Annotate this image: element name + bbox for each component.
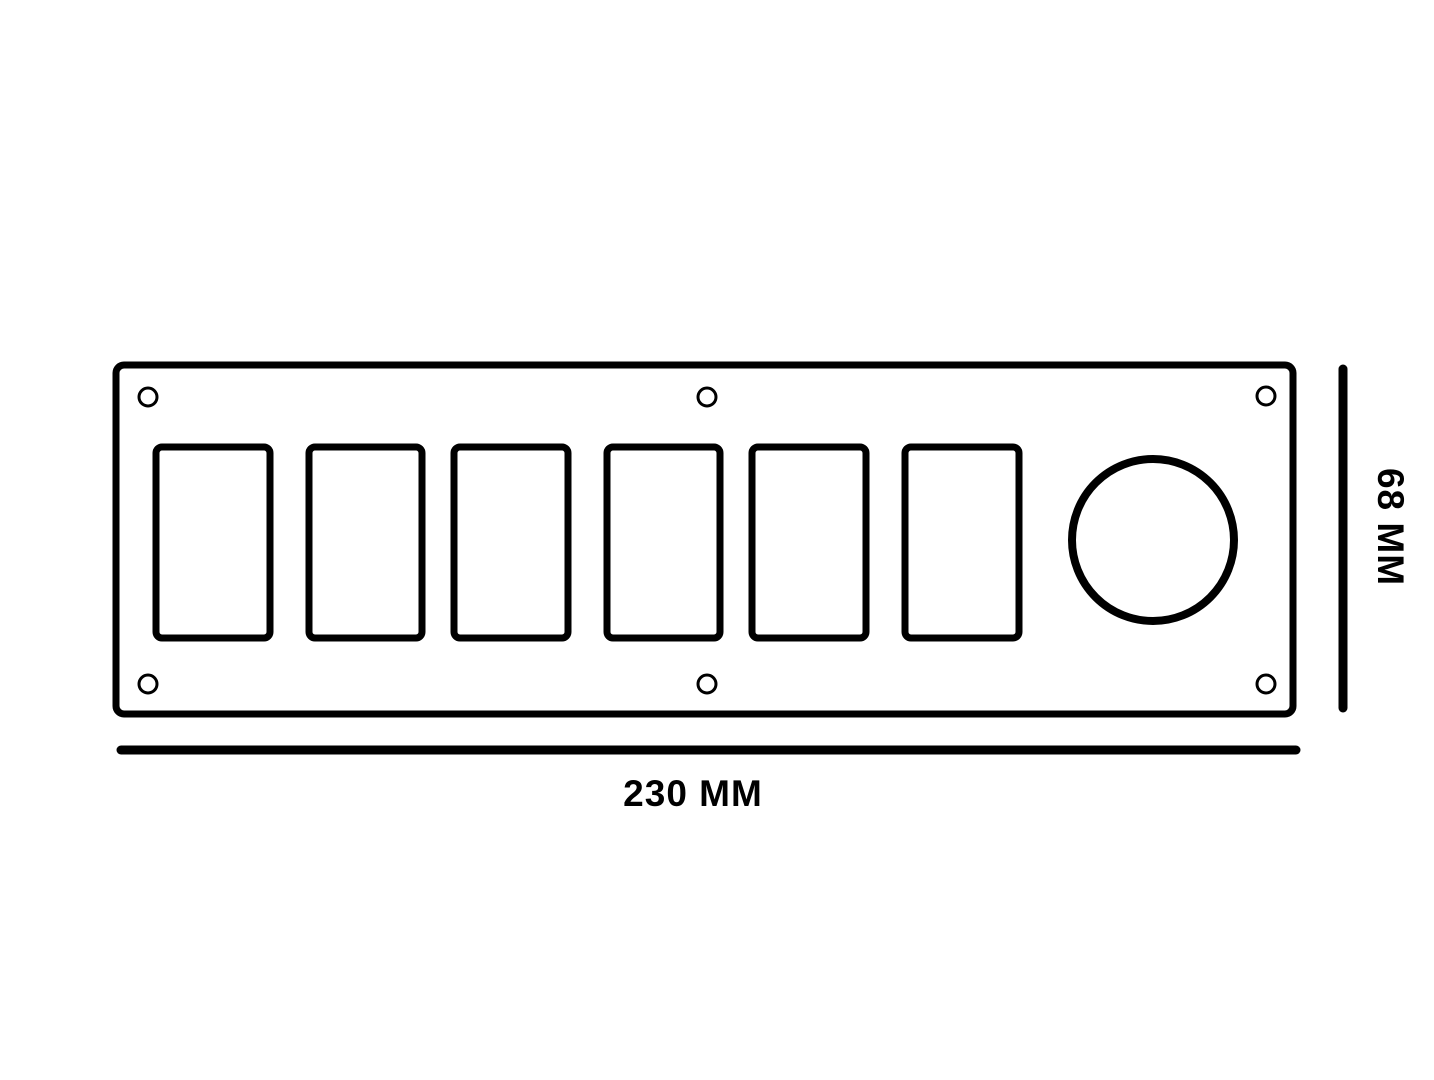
width-dimension-label: 230 MM bbox=[623, 773, 763, 814]
switch-cutout-4 bbox=[607, 447, 720, 638]
switch-cutout-6 bbox=[905, 447, 1019, 638]
technical-drawing-canvas: 230 MM 68 MM bbox=[0, 0, 1434, 1080]
switch-cutout-3 bbox=[454, 447, 568, 638]
switch-panel-drawing: 230 MM 68 MM bbox=[0, 0, 1434, 1080]
switch-cutout-1 bbox=[156, 447, 270, 638]
height-dimension-label: 68 MM bbox=[1370, 468, 1411, 586]
switch-cutout-2 bbox=[309, 447, 422, 638]
gauge-hole bbox=[1072, 459, 1234, 621]
switch-cutout-5 bbox=[752, 447, 866, 638]
